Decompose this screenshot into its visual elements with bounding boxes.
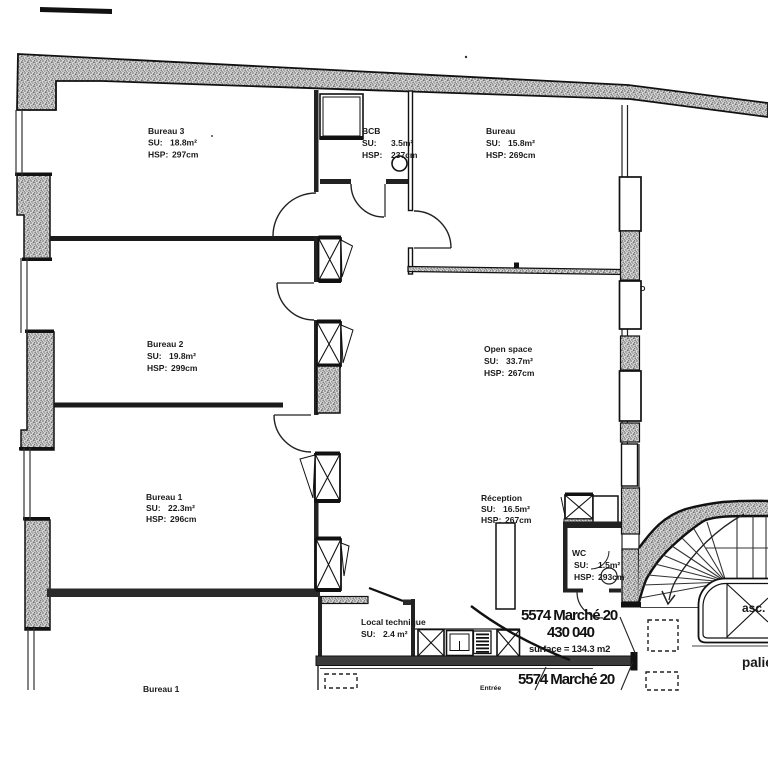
svg-text:22.3m²: 22.3m² [168,503,195,513]
svg-text:5574 Marché 20: 5574 Marché 20 [518,671,615,688]
svg-text:HSP:: HSP: [486,150,506,160]
svg-text:267cm: 267cm [505,515,532,525]
svg-text:SU:: SU: [481,504,496,514]
svg-text:237cm: 237cm [391,150,418,160]
svg-text:33.7m²: 33.7m² [506,356,533,366]
svg-text:430 040: 430 040 [547,624,595,641]
svg-text:299cm: 299cm [171,363,198,373]
svg-text:HSP:: HSP: [484,368,504,378]
svg-text:Open space: Open space [484,344,532,354]
svg-text:16.5m²: 16.5m² [503,504,530,514]
svg-text:palier: palier [742,655,768,670]
svg-text:Bureau 1: Bureau 1 [146,492,183,502]
svg-text:297cm: 297cm [172,150,199,160]
svg-text:SU:: SU: [361,629,376,639]
svg-text:HSP:: HSP: [147,363,167,373]
svg-text:269cm: 269cm [509,150,536,160]
svg-text:SU:: SU: [486,138,501,148]
svg-text:15.8m²: 15.8m² [508,138,535,148]
svg-text:SU:: SU: [147,351,162,361]
svg-text:Bureau 2: Bureau 2 [147,339,184,349]
svg-text:267cm: 267cm [508,368,535,378]
svg-text:asc.: asc. [742,601,765,615]
svg-text:19.8m²: 19.8m² [169,351,196,361]
svg-text:WC: WC [572,548,586,558]
svg-text:HSP:: HSP: [574,572,594,582]
svg-text:3.5m²: 3.5m² [391,138,413,148]
svg-text:HSP:: HSP: [146,514,166,524]
svg-text:HSP:: HSP: [362,150,382,160]
svg-text:5574 Marché 20: 5574 Marché 20 [521,607,618,624]
svg-text:Réception: Réception [481,493,522,503]
svg-text:SU:: SU: [148,138,163,148]
svg-text:HSP:: HSP: [481,515,501,525]
svg-text:BCB: BCB [362,126,380,136]
svg-text:296cm: 296cm [170,514,197,524]
svg-text:SU:: SU: [146,503,161,513]
svg-text:Bureau 1: Bureau 1 [143,684,180,694]
svg-text:Bureau 3: Bureau 3 [148,126,185,136]
svg-text:surface = 134.3 m2: surface = 134.3 m2 [529,644,610,655]
svg-text:HSP:: HSP: [148,150,168,160]
svg-text:Entrée: Entrée [480,685,501,692]
svg-text:SU:: SU: [362,138,377,148]
svg-text:18.8m²: 18.8m² [170,138,197,148]
svg-text:Local technique: Local technique [361,617,426,627]
svg-text:SU:: SU: [574,560,589,570]
svg-text:Bureau: Bureau [486,126,515,136]
svg-text:2.4 m²: 2.4 m² [383,629,408,639]
svg-text:SU:: SU: [484,356,499,366]
